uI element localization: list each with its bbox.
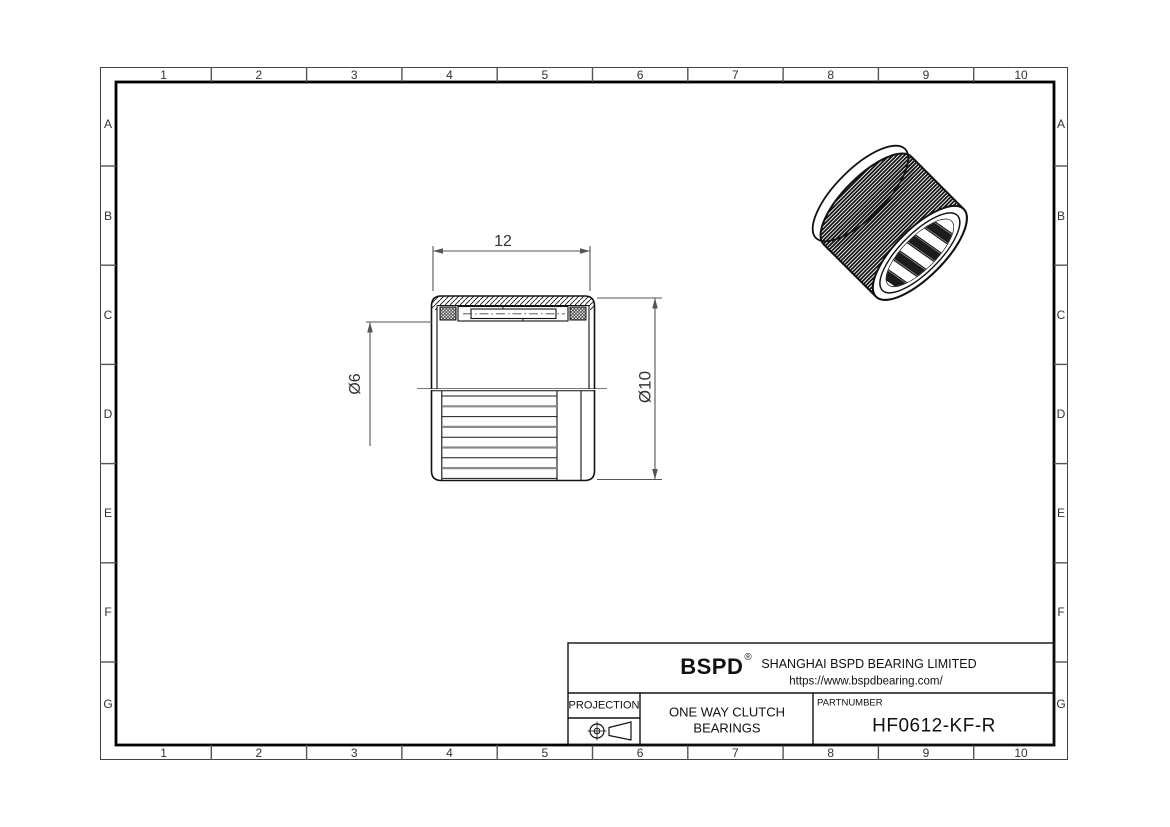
grid-col-label: 3 (351, 69, 358, 81)
grid-col-label: 5 (541, 69, 548, 81)
grid-col-label: 4 (446, 69, 453, 81)
grid-col-label: 8 (827, 69, 834, 81)
brand-logo: BSPD ® (680, 656, 752, 678)
iso-view (799, 132, 991, 324)
grid-col-label: 6 (637, 69, 644, 81)
grid-row-label: B (104, 210, 112, 222)
grid-row-label: B (1057, 210, 1065, 222)
grid-col-label: 3 (351, 747, 358, 759)
grid-col-label: 8 (827, 747, 834, 759)
dim-width-label: 12 (494, 234, 512, 250)
company-name: SHANGHAI BSPD BEARING LIMITED (761, 658, 976, 671)
grid-row-label: G (103, 698, 112, 710)
seal-left (440, 307, 456, 320)
grid-col-label: 10 (1014, 747, 1027, 759)
grid-col-label: 9 (923, 747, 930, 759)
drawing-sheet: 1 2 3 4 5 6 7 8 9 10 1 2 3 4 5 6 7 8 9 1… (0, 0, 1170, 827)
grid-col-label: 5 (541, 747, 548, 759)
visible-rollers (442, 396, 557, 478)
product-name-line2: BEARINGS (693, 722, 760, 735)
part-number: HF0612-KF-R (872, 717, 996, 736)
grid-col-label: 1 (160, 747, 167, 759)
grid-row-label: C (1057, 309, 1066, 321)
grid-row-label: F (104, 606, 111, 618)
grid-row-label: D (1057, 408, 1066, 420)
seal-right (570, 307, 586, 320)
grid-row-label: A (1057, 118, 1065, 130)
grid-col-label: 10 (1014, 69, 1027, 81)
grid-col-label: 7 (732, 747, 739, 759)
grid-row-label: E (1057, 507, 1065, 519)
grid-col-label: 4 (446, 747, 453, 759)
company-website: https://www.bspdbearing.com/ (789, 676, 942, 688)
grid-row-label: A (104, 118, 112, 130)
part-number-label: PARTNUMBER (817, 698, 883, 708)
grid-col-label: 2 (256, 69, 263, 81)
projection-symbol (588, 722, 632, 741)
grid-col-label: 1 (160, 69, 167, 81)
grid-row-label: G (1056, 698, 1065, 710)
grid-col-label: 9 (923, 69, 930, 81)
grid-row-label: F (1057, 606, 1064, 618)
grid-row-label: C (104, 309, 113, 321)
grid-row-label: D (104, 408, 113, 420)
section-view (417, 296, 607, 481)
grid-col-label: 2 (256, 747, 263, 759)
dim-bore (366, 322, 432, 446)
brand-text: BSPD (680, 656, 743, 678)
product-name-line1: ONE WAY CLUTCH (669, 706, 785, 719)
grid-row-label: E (104, 507, 112, 519)
dim-bore-label: Ø6 (348, 373, 364, 394)
registered-mark: ® (744, 653, 751, 663)
grid-col-label: 7 (732, 69, 739, 81)
dim-outer-label: Ø10 (637, 371, 654, 403)
grid-col-label: 6 (637, 747, 644, 759)
dim-width (433, 246, 590, 291)
projection-label: PROJECTION (569, 701, 640, 712)
